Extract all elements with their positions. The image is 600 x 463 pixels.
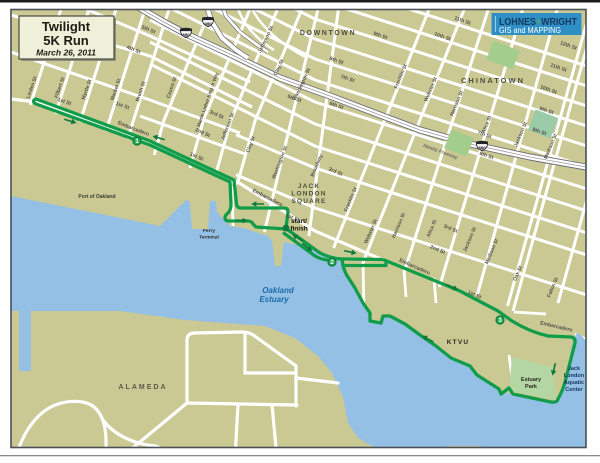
svg-text:Jack: Jack xyxy=(568,366,581,372)
svg-text:LONDON: LONDON xyxy=(291,191,326,198)
svg-text:start/: start/ xyxy=(291,218,307,225)
svg-text:880: 880 xyxy=(479,145,487,150)
svg-text:Estuary: Estuary xyxy=(521,377,542,383)
svg-text:Terminal: Terminal xyxy=(199,235,219,241)
svg-text:980: 980 xyxy=(205,21,213,26)
svg-text:Estuary: Estuary xyxy=(259,295,289,304)
svg-text:KTVU: KTVU xyxy=(447,339,470,346)
svg-text:Center: Center xyxy=(565,387,583,393)
svg-text:Port of Oakland: Port of Oakland xyxy=(78,194,115,200)
svg-text:Ferry: Ferry xyxy=(203,228,215,234)
svg-text:CHINATOWN: CHINATOWN xyxy=(461,76,525,85)
svg-text:London: London xyxy=(564,373,585,379)
svg-text:SQUARE: SQUARE xyxy=(291,198,326,205)
svg-text:Park: Park xyxy=(525,384,538,390)
svg-text:March 26, 2011: March 26, 2011 xyxy=(36,48,96,58)
svg-text:880: 880 xyxy=(183,32,191,37)
svg-text:Twilight: Twilight xyxy=(42,19,91,34)
svg-text:ALAMEDA: ALAMEDA xyxy=(119,384,168,391)
svg-text:Aquatic: Aquatic xyxy=(564,380,584,386)
svg-text:GIS and MAPPING: GIS and MAPPING xyxy=(499,26,561,35)
svg-text:Oakland: Oakland xyxy=(262,286,295,295)
svg-text:5K Run: 5K Run xyxy=(43,33,89,48)
svg-text:DOWNTOWN: DOWNTOWN xyxy=(300,30,356,37)
svg-text:JACK: JACK xyxy=(298,183,321,190)
svg-text:finish: finish xyxy=(290,226,307,233)
